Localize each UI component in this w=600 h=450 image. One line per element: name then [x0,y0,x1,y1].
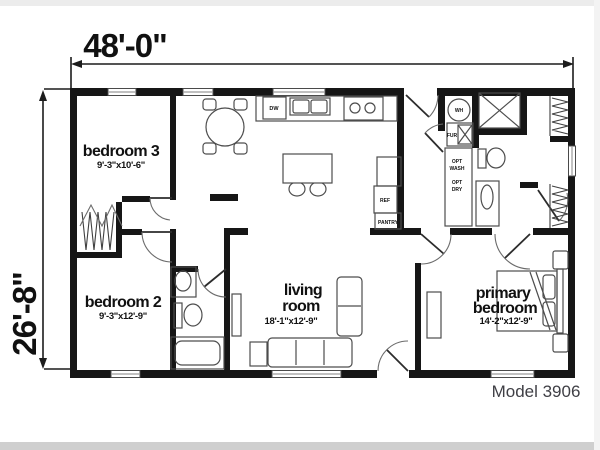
stool [289,182,305,196]
wall [415,263,421,371]
wall [568,88,575,378]
living-room-label: living [284,282,322,299]
dining-chair [203,143,216,154]
sofa [268,338,352,367]
hall-bath-door [198,269,226,297]
arrow-down-icon [39,358,47,369]
sink-bowl [293,100,309,113]
wall [70,252,122,258]
burner [365,103,375,113]
opt-wash-label2: WASH [450,166,465,172]
furnace-label: FUR [447,133,458,139]
wall [224,228,248,235]
doors [142,95,568,371]
width-dimension-label: 48'-0" [83,27,167,64]
bed-fold [536,272,556,330]
wall [533,228,568,235]
wall [122,229,142,235]
front-door-opening [377,369,409,379]
water-heater-label: WH [455,108,464,114]
utility-room: WH FUR OPT WASH OPT DRY [445,99,473,226]
dining-chair [234,143,247,154]
living-room-label2: room [282,298,320,315]
top-band [0,0,600,6]
wall [116,202,122,258]
wall [450,228,492,235]
dresser [427,292,441,338]
bifold-door [80,205,122,226]
tv-console [232,294,241,336]
headboard [557,269,563,333]
window [569,146,576,176]
floorplan-canvas: 48'-0" 26'-8" [0,0,600,450]
nightstand [553,251,568,269]
refrigerator-label: REF [380,198,390,204]
living-room-size: 18'-1"x12'-9" [265,316,318,327]
window [272,371,341,378]
sink-bowl [311,100,327,113]
pantry-label: PANTRY [378,220,399,226]
bottom-band [0,442,600,450]
opt-dry-label: OPT [452,180,462,186]
dining-chair [203,99,216,110]
primary-bedroom-size: 14'-2"x12'-9" [480,316,533,327]
wall [438,96,445,131]
wall [122,196,150,202]
wall [550,136,568,142]
bedroom3-door [150,198,172,220]
bedroom2-door [142,232,172,262]
side-table [250,342,267,366]
opt-dry-label2: DRY [452,187,463,193]
bedroom3-closet [80,205,122,250]
primary-bath-door [495,234,530,269]
back-door [406,95,438,117]
vanity [476,181,499,226]
opt-wash-label: OPT [452,159,462,165]
wall [70,88,77,378]
wall [520,182,538,188]
primary-bedroom-label2: bedroom [473,300,538,317]
kitchen: DW REF PANTRY [256,96,401,229]
nightstand [553,334,568,352]
front-door [378,341,408,371]
wall [224,235,230,371]
hanging-rod-icon [552,186,568,226]
back-door-opening [404,87,437,97]
window [111,371,140,378]
interior-walls [70,96,568,371]
burner [350,103,360,113]
stool [310,182,326,196]
dining-chair [234,99,247,110]
toilet-bowl [184,304,202,326]
right-band [594,0,600,450]
toilet-tank [478,149,486,168]
hanging-rod-icon [552,98,568,134]
dishwasher-label: DW [269,106,279,112]
model-number-label: Model 3906 [492,382,581,401]
arrow-left-icon [71,60,82,68]
dining-table [206,108,244,146]
wall [479,128,527,135]
wall [210,194,238,201]
bedroom3-size: 9'-3"x10'-6" [97,160,145,171]
kitchen-island [283,154,332,183]
primary-hall-door [421,234,451,264]
sink [481,185,493,209]
bedroom2-size: 9'-3"x12'-9" [99,311,147,322]
bathtub-inner [175,341,220,365]
toilet-bowl [487,148,505,168]
wall [170,96,176,200]
window [491,371,534,378]
height-dimension-label: 26'-8" [6,272,43,356]
hall-bath [171,267,224,369]
sink [175,271,191,291]
pillow [543,275,555,299]
dining-area [203,99,247,154]
window [108,89,136,96]
window [273,89,325,96]
arrow-up-icon [39,90,47,101]
floorplan-drawing: 48'-0" 26'-8" [0,0,600,450]
bedroom3-label: bedroom 3 [83,143,160,160]
window [183,89,213,96]
bedroom2-label: bedroom 2 [85,294,162,311]
